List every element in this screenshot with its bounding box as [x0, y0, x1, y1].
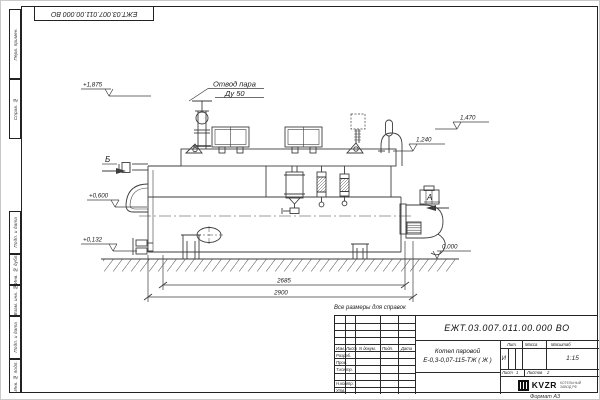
tb-doc-number: ЕЖТ.03.007.011.00.000 ВО [415, 316, 599, 341]
elevation-1470 [435, 122, 489, 129]
view-a-label: А [426, 193, 432, 202]
tb-row-approved: Утв. [336, 388, 346, 393]
burner-assembly [400, 186, 445, 255]
callout-steam-text: Отвод пара [213, 80, 256, 89]
tb-row-checked: Пров. [336, 360, 347, 365]
front-door [126, 184, 148, 212]
tb-sheet-label: Лист [502, 370, 513, 375]
tb-row-tcontrol: Т.контр. [336, 367, 353, 372]
tb-row-ncontrol: Н.контр. [336, 381, 354, 386]
company-cell: KVZR КОТЕЛЬНЫЙ ЗАВОД РФ [500, 376, 599, 394]
tb-scale-header: Масштаб [551, 342, 571, 347]
steam-outlet-pipe [192, 101, 212, 149]
elevation-0600 [87, 200, 147, 207]
elevation-0132 [81, 244, 137, 251]
elevation-0000 [433, 251, 471, 259]
reference-note: Все размеры для справок [334, 305, 406, 311]
tb-col-doc: N докум. [359, 346, 376, 351]
siphon-pipe [381, 133, 402, 166]
boiler-body [139, 149, 413, 252]
elevation-1240 [393, 144, 445, 151]
rear-support-foot [351, 244, 369, 259]
water-gauge-glass-1 [317, 166, 326, 207]
elevation-1470-text: 1,470 [460, 115, 476, 122]
elevation-0132-text: +0,132 [83, 237, 103, 244]
elevation-0000-text: 0,000 [442, 244, 458, 251]
tb-col-date: Дата [401, 346, 412, 351]
burner-fan [407, 222, 421, 234]
tb-col-list: Лист [346, 346, 357, 351]
kvzr-logo-text: KVZR [532, 380, 557, 390]
company-subtitle: КОТЕЛЬНЫЙ ЗАВОД РФ [560, 381, 581, 390]
tb-sheets-value: 2 [547, 370, 549, 375]
tb-product-name: Котел паровой Е-0,3-0,07-115-ТЖ ( Ж ) [415, 342, 500, 370]
tb-lit-value: И [500, 348, 508, 369]
elevation-0600-text: +0,600 [89, 193, 109, 200]
elevation-1875 [81, 89, 151, 96]
title-block: Изм. Лист N докум. Подп. Дата Разраб. Пр… [334, 315, 598, 393]
kvzr-logo-icon [518, 380, 529, 391]
tb-row-developed: Разраб. [336, 353, 351, 358]
view-arrow-a [424, 202, 449, 211]
tb-sheet-value: 1 [516, 370, 518, 375]
dimension-2900-text: 2900 [273, 290, 288, 297]
tb-col-sign: Подп. [382, 346, 393, 351]
drum-fittings [347, 114, 402, 166]
tb-scale-value: 1:15 [546, 348, 599, 369]
view-b-label: Б [105, 155, 110, 164]
tb-sheets-label: Листов [527, 370, 542, 375]
drawing-sheet: ЕЖТ.03.007.011.00.000 ВО Перв. примен. С… [0, 0, 600, 400]
instrument-outline [351, 114, 365, 129]
format-label: Формат А3 [530, 394, 560, 400]
tb-mass-header: Масса [525, 342, 537, 347]
tb-lit-header: Лит. [507, 342, 517, 347]
elevation-1240-text: 1,240 [416, 137, 432, 144]
water-column [282, 166, 305, 214]
callout-dn-text: Ду 50 [224, 89, 245, 98]
elevation-1875-text: +1,875 [83, 82, 103, 89]
tb-col-izm: Изм. [336, 346, 345, 351]
water-gauge-glass-2 [340, 166, 349, 206]
dimension-2685-text: 2685 [276, 278, 291, 285]
